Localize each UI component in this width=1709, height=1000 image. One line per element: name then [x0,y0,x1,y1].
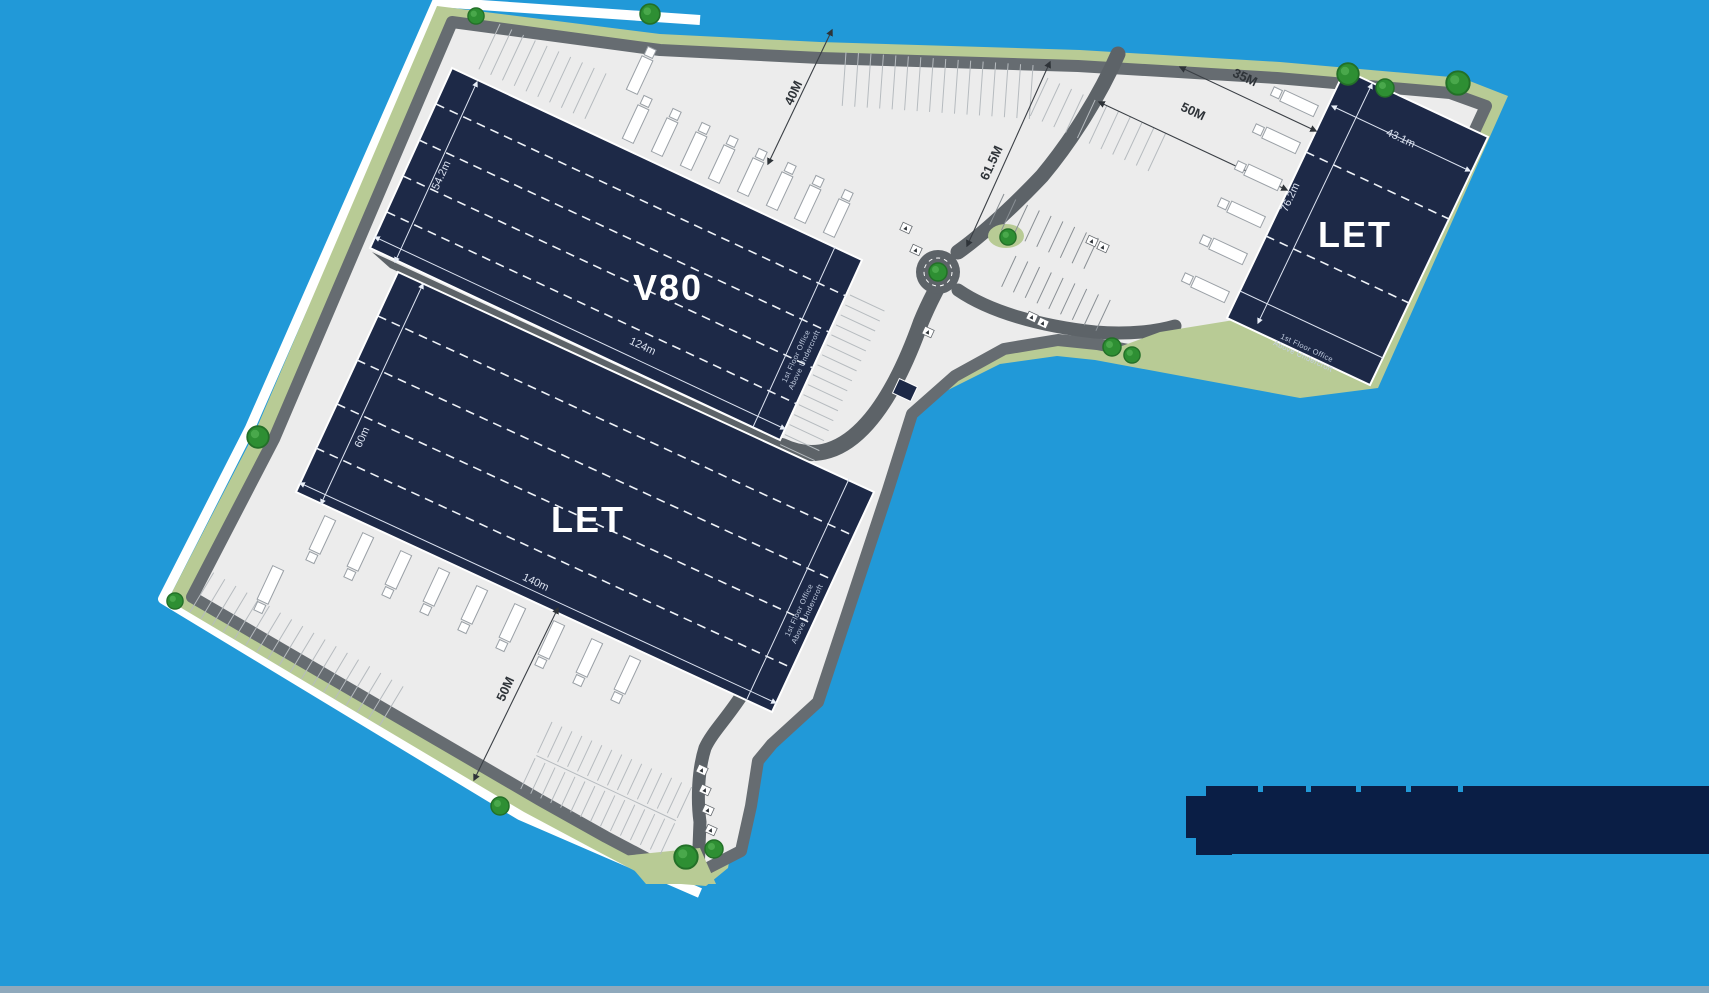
v80-label: V80 [633,267,703,308]
south-let-label: LET [551,499,625,540]
site-plan-svg: V80 LET LET 54.2m 124m 60m 140m 43.1m 76… [0,0,1709,1000]
site-masterplan: V80 LET LET 54.2m 124m 60m 140m 43.1m 76… [0,0,1709,1000]
east-let-label: LET [1318,214,1392,255]
bottom-white-strip [0,993,1709,1000]
cropped-logo-bar [1186,786,1709,855]
bottom-edge-strip [0,986,1709,993]
